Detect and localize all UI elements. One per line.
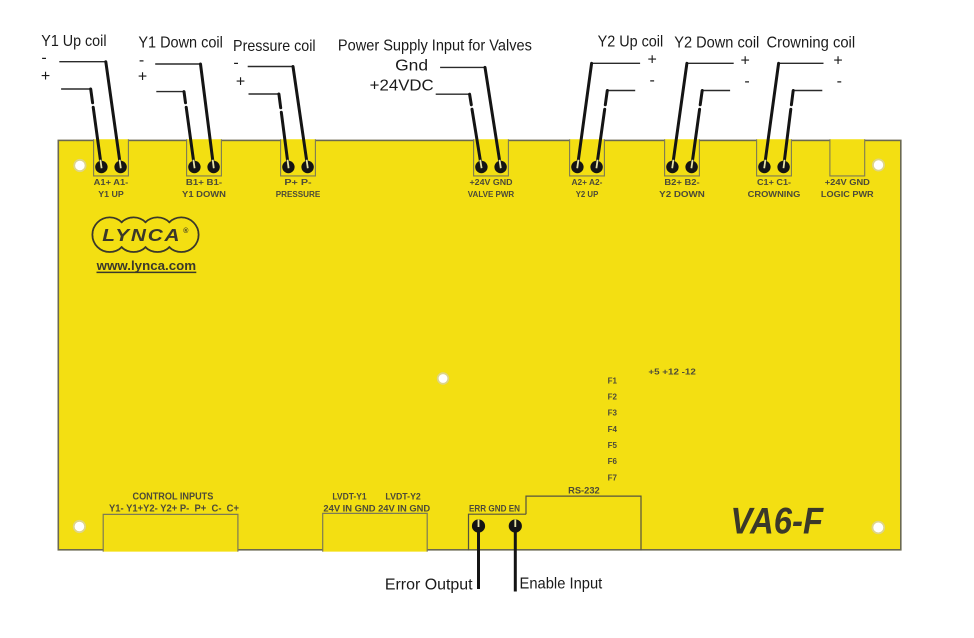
svg-text:Y1 UP: Y1 UP	[98, 190, 124, 199]
svg-text:F5: F5	[608, 441, 618, 450]
svg-text:-: -	[139, 52, 144, 69]
svg-text:LVDT-Y1: LVDT-Y1	[332, 491, 367, 502]
svg-text:-: -	[650, 72, 655, 89]
svg-text:Power Supply Input for Valves: Power Supply Input for Valves	[338, 37, 532, 54]
svg-text:LVDT-Y2: LVDT-Y2	[385, 491, 420, 502]
svg-text:+24V GND: +24V GND	[825, 178, 870, 187]
svg-text:C1+ C1-: C1+ C1-	[757, 178, 791, 187]
svg-text:®: ®	[183, 227, 189, 235]
svg-text:LYNCA: LYNCA	[102, 225, 181, 245]
svg-text:Y1- Y1+Y2- Y2+ P- P+ C- C+: Y1- Y1+Y2- Y2+ P- P+ C- C+	[109, 504, 239, 515]
svg-text:www.lynca.com: www.lynca.com	[96, 258, 196, 273]
svg-text:Y1 DOWN: Y1 DOWN	[182, 190, 226, 199]
svg-text:F2: F2	[608, 393, 618, 402]
svg-text:F4: F4	[608, 425, 618, 434]
svg-text:B2+ B2-: B2+ B2-	[664, 178, 700, 187]
svg-text:Crowning coil: Crowning coil	[767, 35, 856, 52]
svg-text:Y2 Down coil: Y2 Down coil	[674, 35, 759, 52]
svg-text:+: +	[648, 51, 657, 68]
svg-text:B1+ B1-: B1+ B1-	[186, 178, 223, 187]
svg-text:Y2 UP: Y2 UP	[576, 190, 599, 199]
svg-text:-: -	[837, 73, 842, 90]
svg-text:VA6-F: VA6-F	[731, 501, 825, 542]
svg-text:F6: F6	[608, 457, 618, 466]
svg-text:Error Output: Error Output	[385, 577, 473, 594]
svg-text:A1+ A1-: A1+ A1-	[94, 178, 129, 187]
svg-text:P+ P-: P+ P-	[284, 178, 312, 187]
svg-text:Y1 Down coil: Y1 Down coil	[138, 35, 223, 52]
svg-text:+: +	[741, 53, 750, 70]
svg-text:F7: F7	[608, 473, 618, 482]
svg-text:VALVE PWR: VALVE PWR	[468, 190, 515, 199]
svg-text:Enable Input: Enable Input	[520, 576, 603, 593]
svg-text:24V IN GND 24V IN GND: 24V IN GND 24V IN GND	[323, 503, 430, 514]
svg-text:CROWNING: CROWNING	[748, 190, 801, 199]
svg-text:+: +	[41, 68, 50, 85]
svg-text:-: -	[41, 50, 46, 67]
svg-text:+: +	[236, 73, 245, 90]
svg-text:-: -	[233, 55, 238, 72]
svg-text:Y1 Up coil: Y1 Up coil	[41, 33, 106, 50]
svg-text:Gnd: Gnd	[395, 58, 428, 75]
svg-text:PRESSURE: PRESSURE	[276, 190, 321, 199]
svg-text:+: +	[833, 53, 842, 70]
svg-text:+5 +12 -12: +5 +12 -12	[648, 368, 696, 377]
svg-text:+24VDC: +24VDC	[370, 78, 434, 95]
svg-text:CONTROL INPUTS: CONTROL INPUTS	[133, 492, 214, 503]
svg-text:Pressure coil: Pressure coil	[233, 38, 316, 55]
svg-text:A2+ A2-: A2+ A2-	[572, 178, 603, 187]
svg-text:ERR GND EN: ERR GND EN	[469, 504, 520, 515]
svg-text:Y2 DOWN: Y2 DOWN	[659, 190, 705, 199]
svg-text:F3: F3	[608, 409, 618, 418]
svg-text:Y2 Up coil: Y2 Up coil	[598, 33, 664, 50]
svg-text:F1: F1	[608, 376, 618, 385]
svg-text:RS-232: RS-232	[568, 485, 600, 495]
svg-text:LOGIC PWR: LOGIC PWR	[821, 190, 874, 199]
svg-text:+: +	[138, 69, 147, 86]
svg-text:+24V GND: +24V GND	[470, 178, 513, 187]
svg-text:-: -	[744, 73, 749, 90]
